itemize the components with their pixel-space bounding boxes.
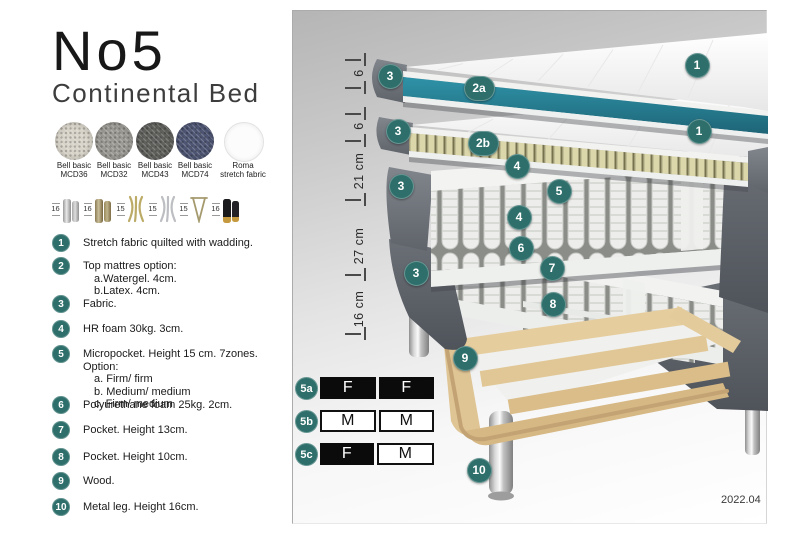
callout-badge-2a: 2a bbox=[464, 76, 495, 101]
firmness-cell: F bbox=[320, 377, 376, 399]
leg-option: 16 bbox=[210, 192, 242, 226]
callout-badge-8: 8 bbox=[541, 292, 566, 317]
page-subtitle: Continental Bed bbox=[52, 78, 260, 109]
ruler-tick bbox=[345, 199, 361, 201]
dimension-label: 6 bbox=[339, 53, 379, 93]
part-description: Wood. bbox=[83, 475, 115, 488]
dimension-label: 27 cm bbox=[339, 226, 379, 266]
leg-height-label: 15 bbox=[148, 205, 156, 213]
leg-height-label: 16 bbox=[83, 205, 91, 213]
callout-badge-4: 4 bbox=[507, 205, 532, 230]
dimension-label: 6 bbox=[339, 106, 379, 146]
list-item: 7 Pocket. Height 13cm. bbox=[52, 421, 290, 439]
leg-height-label: 16 bbox=[51, 205, 59, 213]
firmness-row-5c: F M bbox=[320, 443, 434, 465]
fabric-swatch-mcd36 bbox=[55, 122, 93, 160]
cylinder-bronze-legs-icon bbox=[93, 195, 113, 223]
callout-badge-1: 1 bbox=[687, 119, 712, 144]
part-number-badge: 9 bbox=[52, 472, 70, 490]
firmness-cell: M bbox=[320, 410, 376, 432]
leg-option: 15 bbox=[178, 192, 210, 226]
part-description: Pocket. Height 13cm. bbox=[83, 424, 188, 437]
list-item: 9 Wood. bbox=[52, 472, 290, 490]
list-item: 8 Pocket. Height 10cm. bbox=[52, 448, 290, 466]
diagram-panel: 6 6 21 cm 27 cm 16 cm 3 2a 1 3 2b 1 4 5 … bbox=[292, 10, 767, 524]
callout-badge-3: 3 bbox=[404, 261, 429, 286]
firmness-row-5b: M M bbox=[320, 410, 434, 432]
info-column: No5 Continental Bed Bell basicMCD36 Bell… bbox=[0, 0, 292, 533]
callout-badge-7: 7 bbox=[540, 256, 565, 281]
part-description: Polyurethane foam 25kg. 2cm. bbox=[83, 399, 232, 412]
leg-option: 15 bbox=[115, 192, 147, 226]
fabric-swatch-mcd32 bbox=[95, 122, 133, 160]
callout-badge-3: 3 bbox=[389, 174, 414, 199]
ruler-tick bbox=[345, 333, 361, 335]
fabric-swatch-mcd43 bbox=[136, 122, 174, 160]
list-item: 10 Metal leg. Height 16cm. bbox=[52, 498, 290, 516]
part-description: Micropocket. Height 15 cm. 7zones. Optio… bbox=[83, 348, 290, 373]
callout-badge-5: 5 bbox=[547, 179, 572, 204]
dimension-label: 21 cm bbox=[339, 151, 379, 191]
cylinder-silver-legs-icon bbox=[61, 195, 81, 223]
leg-height-label: 16 bbox=[211, 205, 219, 213]
part-description: Stretch fabric quilted with wadding. bbox=[83, 237, 253, 250]
fabric-swatch-label: Romastretch fabric bbox=[215, 161, 271, 179]
part-sub-option: a.Watergel. 4cm. bbox=[94, 273, 177, 286]
version-label: 2022.04 bbox=[721, 494, 761, 506]
callout-badge-10: 10 bbox=[467, 458, 492, 483]
part-description: Pocket. Height 10cm. bbox=[83, 451, 188, 464]
callout-badge-9: 9 bbox=[453, 346, 478, 371]
part-description: Fabric. bbox=[83, 298, 117, 311]
firmness-badge-5c: 5c bbox=[295, 443, 318, 466]
part-sub-option: a. Firm/ firm bbox=[94, 373, 290, 386]
fabric-swatch-roma bbox=[224, 122, 264, 162]
part-description: Top mattres option: bbox=[83, 260, 177, 273]
callout-badge-4: 4 bbox=[505, 154, 530, 179]
dimension-label: 16 cm bbox=[339, 289, 379, 329]
part-number-badge: 7 bbox=[52, 421, 70, 439]
page-title: No5 bbox=[52, 18, 167, 83]
list-item: 6 Polyurethane foam 25kg. 2cm. bbox=[52, 396, 290, 414]
curved-gold-legs-icon bbox=[126, 195, 146, 223]
leg-height-label: 15 bbox=[179, 205, 187, 213]
ruler-tick bbox=[345, 274, 361, 276]
part-description: HR foam 30kg. 3cm. bbox=[83, 323, 183, 336]
list-item: 4 HR foam 30kg. 3cm. bbox=[52, 320, 290, 338]
part-description: Metal leg. Height 16cm. bbox=[83, 501, 199, 514]
leg-option: 15 bbox=[147, 192, 179, 226]
part-number-badge: 4 bbox=[52, 320, 70, 338]
callout-badge-2b: 2b bbox=[468, 131, 499, 156]
list-item: 1 Stretch fabric quilted with wadding. bbox=[52, 234, 290, 252]
fabric-swatch-mcd74 bbox=[176, 122, 214, 160]
hairpin-metal-leg-icon bbox=[189, 195, 209, 223]
part-number-badge: 3 bbox=[52, 295, 70, 313]
list-item: 3 Fabric. bbox=[52, 295, 290, 313]
curved-silver-legs-icon bbox=[158, 195, 178, 223]
part-number-badge: 2 bbox=[52, 257, 70, 275]
firmness-badge-5a: 5a bbox=[295, 377, 318, 400]
leg-option: 16 bbox=[50, 192, 82, 226]
part-number-badge: 1 bbox=[52, 234, 70, 252]
part-number-badge: 5 bbox=[52, 345, 70, 363]
callout-badge-1: 1 bbox=[685, 53, 710, 78]
black-gold-tip-legs-icon bbox=[221, 195, 241, 223]
leg-height-label: 15 bbox=[116, 205, 124, 213]
firmness-cell: F bbox=[320, 443, 374, 465]
firmness-row-5a: F F bbox=[320, 377, 434, 399]
callout-badge-6: 6 bbox=[509, 236, 534, 261]
callout-badge-3: 3 bbox=[386, 119, 411, 144]
firmness-cell: M bbox=[377, 443, 435, 465]
firmness-cell: M bbox=[379, 410, 435, 432]
firmness-cell: F bbox=[379, 377, 435, 399]
callout-badge-3: 3 bbox=[378, 64, 403, 89]
leg-option: 16 bbox=[82, 192, 114, 226]
part-number-badge: 8 bbox=[52, 448, 70, 466]
list-item: 2 Top mattres option: a.Watergel. 4cm. b… bbox=[52, 257, 290, 298]
firmness-badge-5b: 5b bbox=[295, 410, 318, 433]
part-number-badge: 10 bbox=[52, 498, 70, 516]
part-number-badge: 6 bbox=[52, 396, 70, 414]
